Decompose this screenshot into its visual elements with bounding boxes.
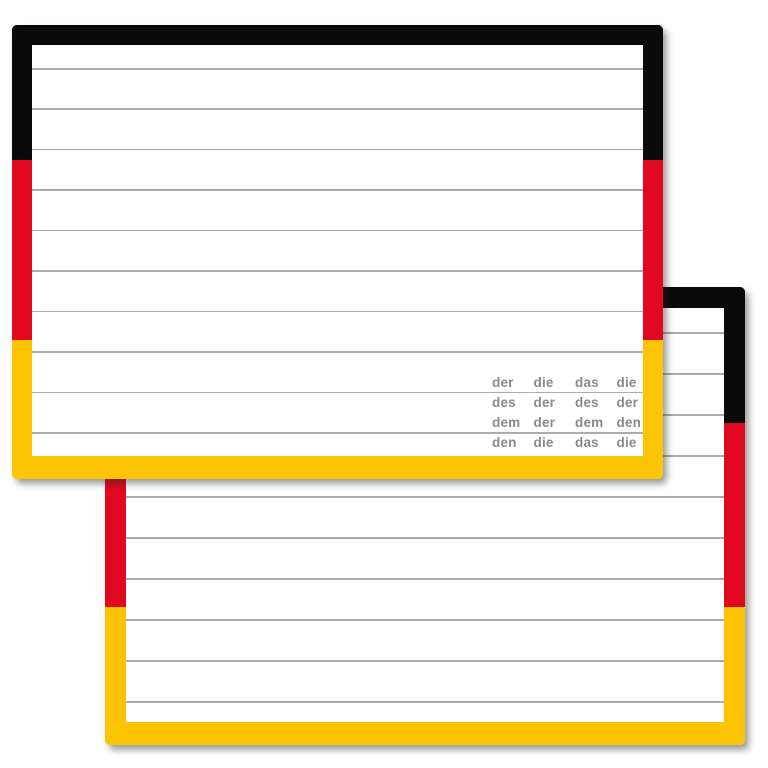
article-word: des — [573, 396, 615, 410]
rule-line — [32, 68, 643, 70]
article-word: die — [615, 376, 657, 390]
rule-line — [126, 496, 724, 498]
rule-line — [126, 537, 724, 539]
scene: der die das die des der des der dem der … — [0, 0, 768, 768]
rule-line — [32, 351, 643, 353]
rule-line — [32, 311, 643, 313]
article-word: des — [490, 396, 532, 410]
flag-border-bottom — [12, 456, 663, 479]
rule-line — [32, 108, 643, 110]
article-word: der — [532, 396, 574, 410]
flashcard-front: der die das die des der des der dem der … — [12, 25, 663, 479]
flag-border-left — [12, 25, 32, 479]
article-word: das — [573, 436, 615, 450]
flag-border-top — [12, 25, 663, 45]
article-word: das — [573, 376, 615, 390]
rule-line — [32, 149, 643, 151]
flag-border-right — [724, 287, 745, 745]
article-word: der — [615, 396, 657, 410]
article-word: der — [490, 376, 532, 390]
rule-line — [32, 270, 643, 272]
article-word: die — [532, 436, 574, 450]
rule-line — [32, 189, 643, 191]
german-article-table: der die das die des der des der dem der … — [490, 373, 656, 453]
rule-line — [126, 619, 724, 621]
article-word: den — [615, 416, 657, 430]
rule-line — [126, 578, 724, 580]
article-word: die — [615, 436, 657, 450]
article-word: den — [490, 436, 532, 450]
article-word: der — [532, 416, 574, 430]
flag-border-bottom — [105, 722, 745, 745]
rule-line — [126, 701, 724, 703]
article-word: dem — [573, 416, 615, 430]
article-word: die — [532, 376, 574, 390]
rule-line — [126, 660, 724, 662]
rule-line — [32, 230, 643, 232]
article-word: dem — [490, 416, 532, 430]
